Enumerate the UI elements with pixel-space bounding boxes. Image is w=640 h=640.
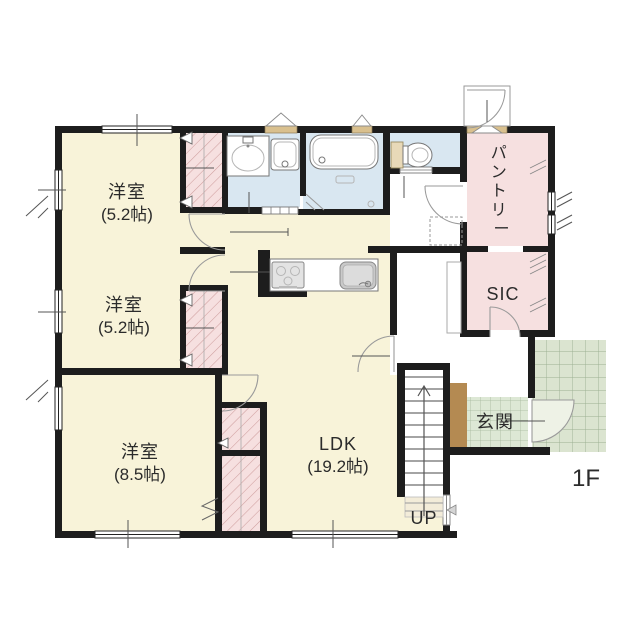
floor-plan: 洋室 (5.2帖) 洋室 (5.2帖) 洋室 (8.5帖) LDK (19.2帖… (0, 0, 640, 640)
ldk-label: LDK (319, 434, 357, 454)
ac-mark-bedroom3 (26, 380, 48, 402)
floor-plan-page: 洋室 (5.2帖) 洋室 (5.2帖) 洋室 (8.5帖) LDK (19.2帖… (0, 0, 640, 640)
closet-bedroom3-lower (222, 456, 260, 531)
window-bedroom3-left (55, 387, 62, 430)
bedroom1-size: (5.2帖) (101, 205, 153, 224)
bedroom3-label: 洋室 (121, 442, 159, 462)
stairs-up-label: UP (410, 508, 437, 528)
pantry-door-arc (404, 176, 463, 224)
entrance-label: 玄関 (476, 412, 514, 432)
vanity-sink-icon (227, 136, 269, 176)
vent-washroom-top (265, 113, 297, 133)
window-pantry-right-upper (548, 192, 572, 211)
window-bedroom2-left (38, 290, 66, 333)
ldk-floor (228, 213, 390, 375)
stove-icon (272, 262, 304, 289)
ldk-size: (19.2帖) (307, 457, 368, 476)
bedroom2-label: 洋室 (105, 295, 143, 315)
ldk-floor (222, 375, 267, 402)
washer-pan-icon (271, 139, 299, 170)
window-bedroom1-left (38, 170, 66, 210)
entrance-step-board (450, 383, 467, 455)
window-ldk-east (443, 495, 456, 525)
kitchen-counter (270, 259, 378, 291)
refrigerator-space (430, 217, 462, 245)
bedroom1-label: 洋室 (108, 182, 146, 202)
vent-bathroom-top (352, 115, 372, 133)
hall-cabinet (447, 262, 461, 333)
toilet-icon (391, 142, 432, 168)
sic-label: SIC (486, 284, 519, 304)
pantry-label: パ ン ト リ ー (491, 145, 513, 238)
stairs (405, 370, 443, 517)
toilet-sliding-door (400, 167, 432, 173)
kitchen-sink-icon (340, 262, 376, 289)
bedroom3-size: (8.5帖) (114, 465, 166, 484)
ac-mark-bedroom1 (26, 196, 48, 218)
bedroom2-size: (5.2帖) (98, 318, 150, 337)
pantry-exterior-door (464, 86, 510, 128)
window-pantry-right-lower (548, 215, 572, 234)
floor-label: 1F (572, 465, 600, 492)
